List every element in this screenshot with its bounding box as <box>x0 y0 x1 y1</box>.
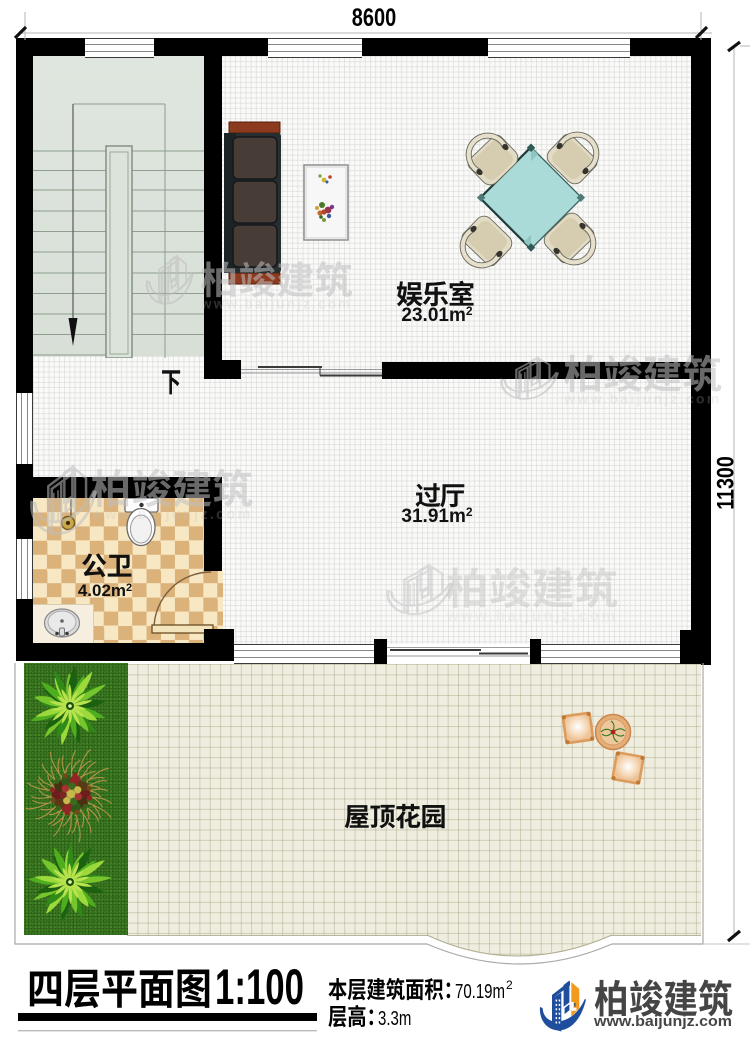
svg-text:www.baijunjz.com: www.baijunjz.com <box>593 1014 732 1030</box>
svg-text:3.3m: 3.3m <box>378 1007 411 1030</box>
svg-text:8600: 8600 <box>352 4 396 32</box>
svg-text:70.19m: 70.19m <box>455 980 505 1003</box>
svg-text:11300: 11300 <box>712 456 739 510</box>
svg-text:2: 2 <box>506 978 513 992</box>
svg-text:1:100: 1:100 <box>215 959 304 1015</box>
